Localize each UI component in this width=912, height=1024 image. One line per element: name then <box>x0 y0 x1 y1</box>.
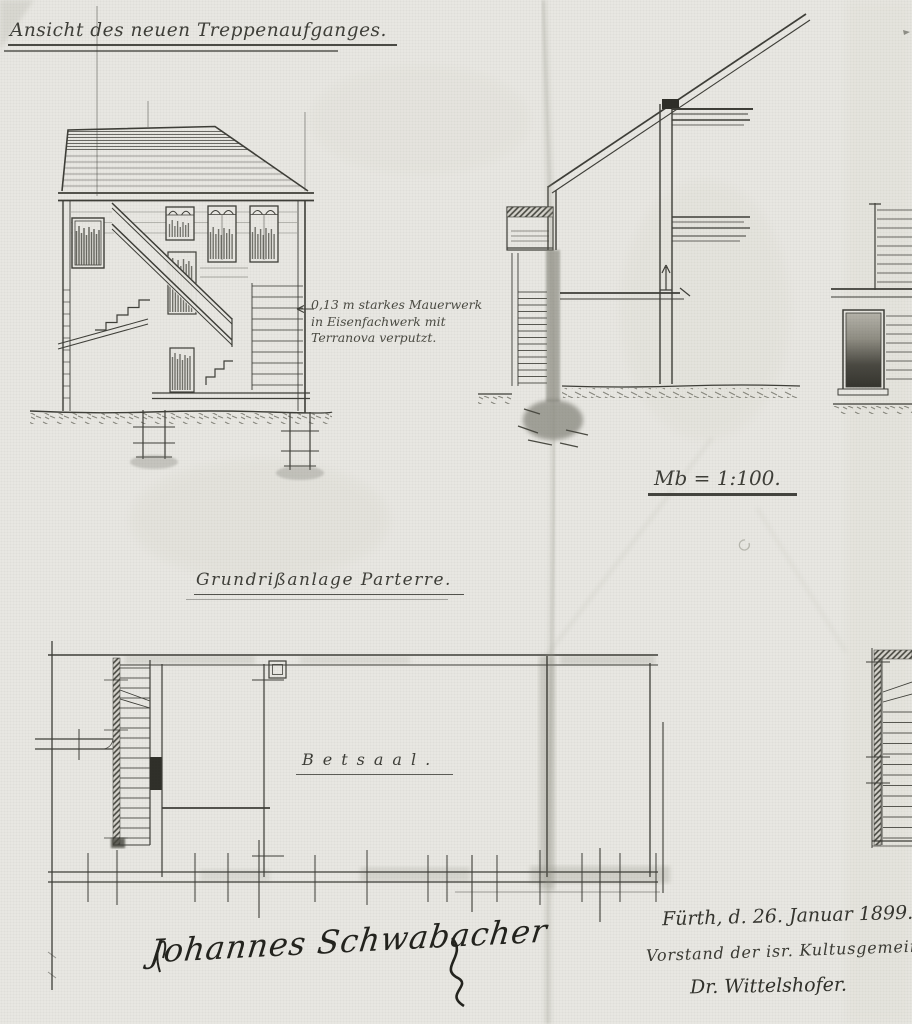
drawing-sheet-svg <box>0 0 912 1024</box>
stair-landing-box <box>507 207 553 250</box>
plan-interior-wall <box>162 661 286 877</box>
scale-note: Mb = 1:100. <box>648 466 797 496</box>
material-note: 0,13 m starkes Mauerwerk in Eisenfachwer… <box>311 297 482 347</box>
arched-window-3 <box>250 206 278 262</box>
material-note-line-1: 0,13 m starkes Mauerwerk <box>311 297 482 314</box>
arched-window-1 <box>166 207 194 240</box>
elevation-title: Ansicht des neuen Treppenaufganges. <box>8 20 397 46</box>
plan-title: Grundrißanlage Parterre. <box>194 570 464 595</box>
plan-stair-block <box>104 658 162 848</box>
stair-window-left <box>72 218 104 268</box>
material-note-line-2: in Eisenfachwerk mit <box>311 314 482 331</box>
plan-title-underline-2 <box>186 599 448 600</box>
title-underline-2 <box>4 50 338 52</box>
elevation-ground <box>30 393 332 424</box>
elevation-new-stair <box>30 6 332 480</box>
stair-window-lower <box>170 348 194 392</box>
section-stair-flight <box>512 253 547 386</box>
approver-signature: Dr. Wittelshofer. <box>690 974 847 999</box>
room-label: Betsaal. <box>296 750 453 775</box>
material-note-line-3: Terranova verputzt. <box>311 330 482 347</box>
plan-left-projection <box>35 729 113 760</box>
arched-window-2 <box>208 206 236 262</box>
scanned-drawing-sheet: Ansicht des neuen Treppenaufganges. 0,13… <box>0 0 912 1024</box>
roof-hatching <box>60 132 310 187</box>
